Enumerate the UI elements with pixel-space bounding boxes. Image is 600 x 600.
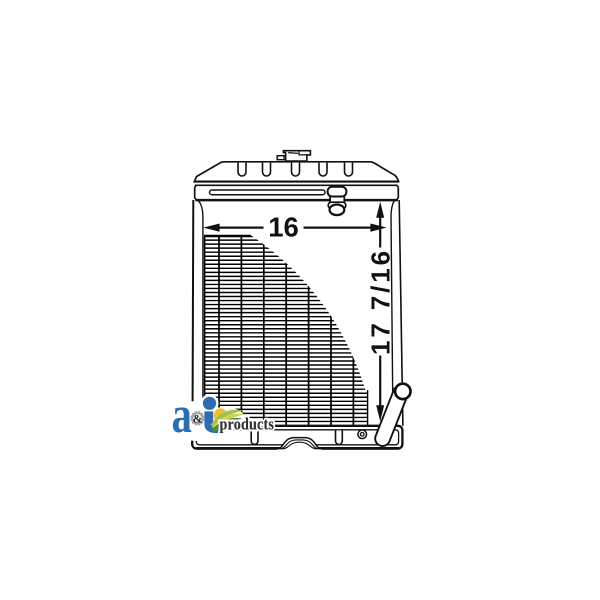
svg-text:products: products [220, 415, 275, 434]
svg-text:16: 16 [268, 212, 299, 243]
svg-text:&: & [193, 413, 203, 425]
svg-text:17 7/16: 17 7/16 [366, 248, 396, 355]
svg-text:a: a [172, 386, 192, 444]
